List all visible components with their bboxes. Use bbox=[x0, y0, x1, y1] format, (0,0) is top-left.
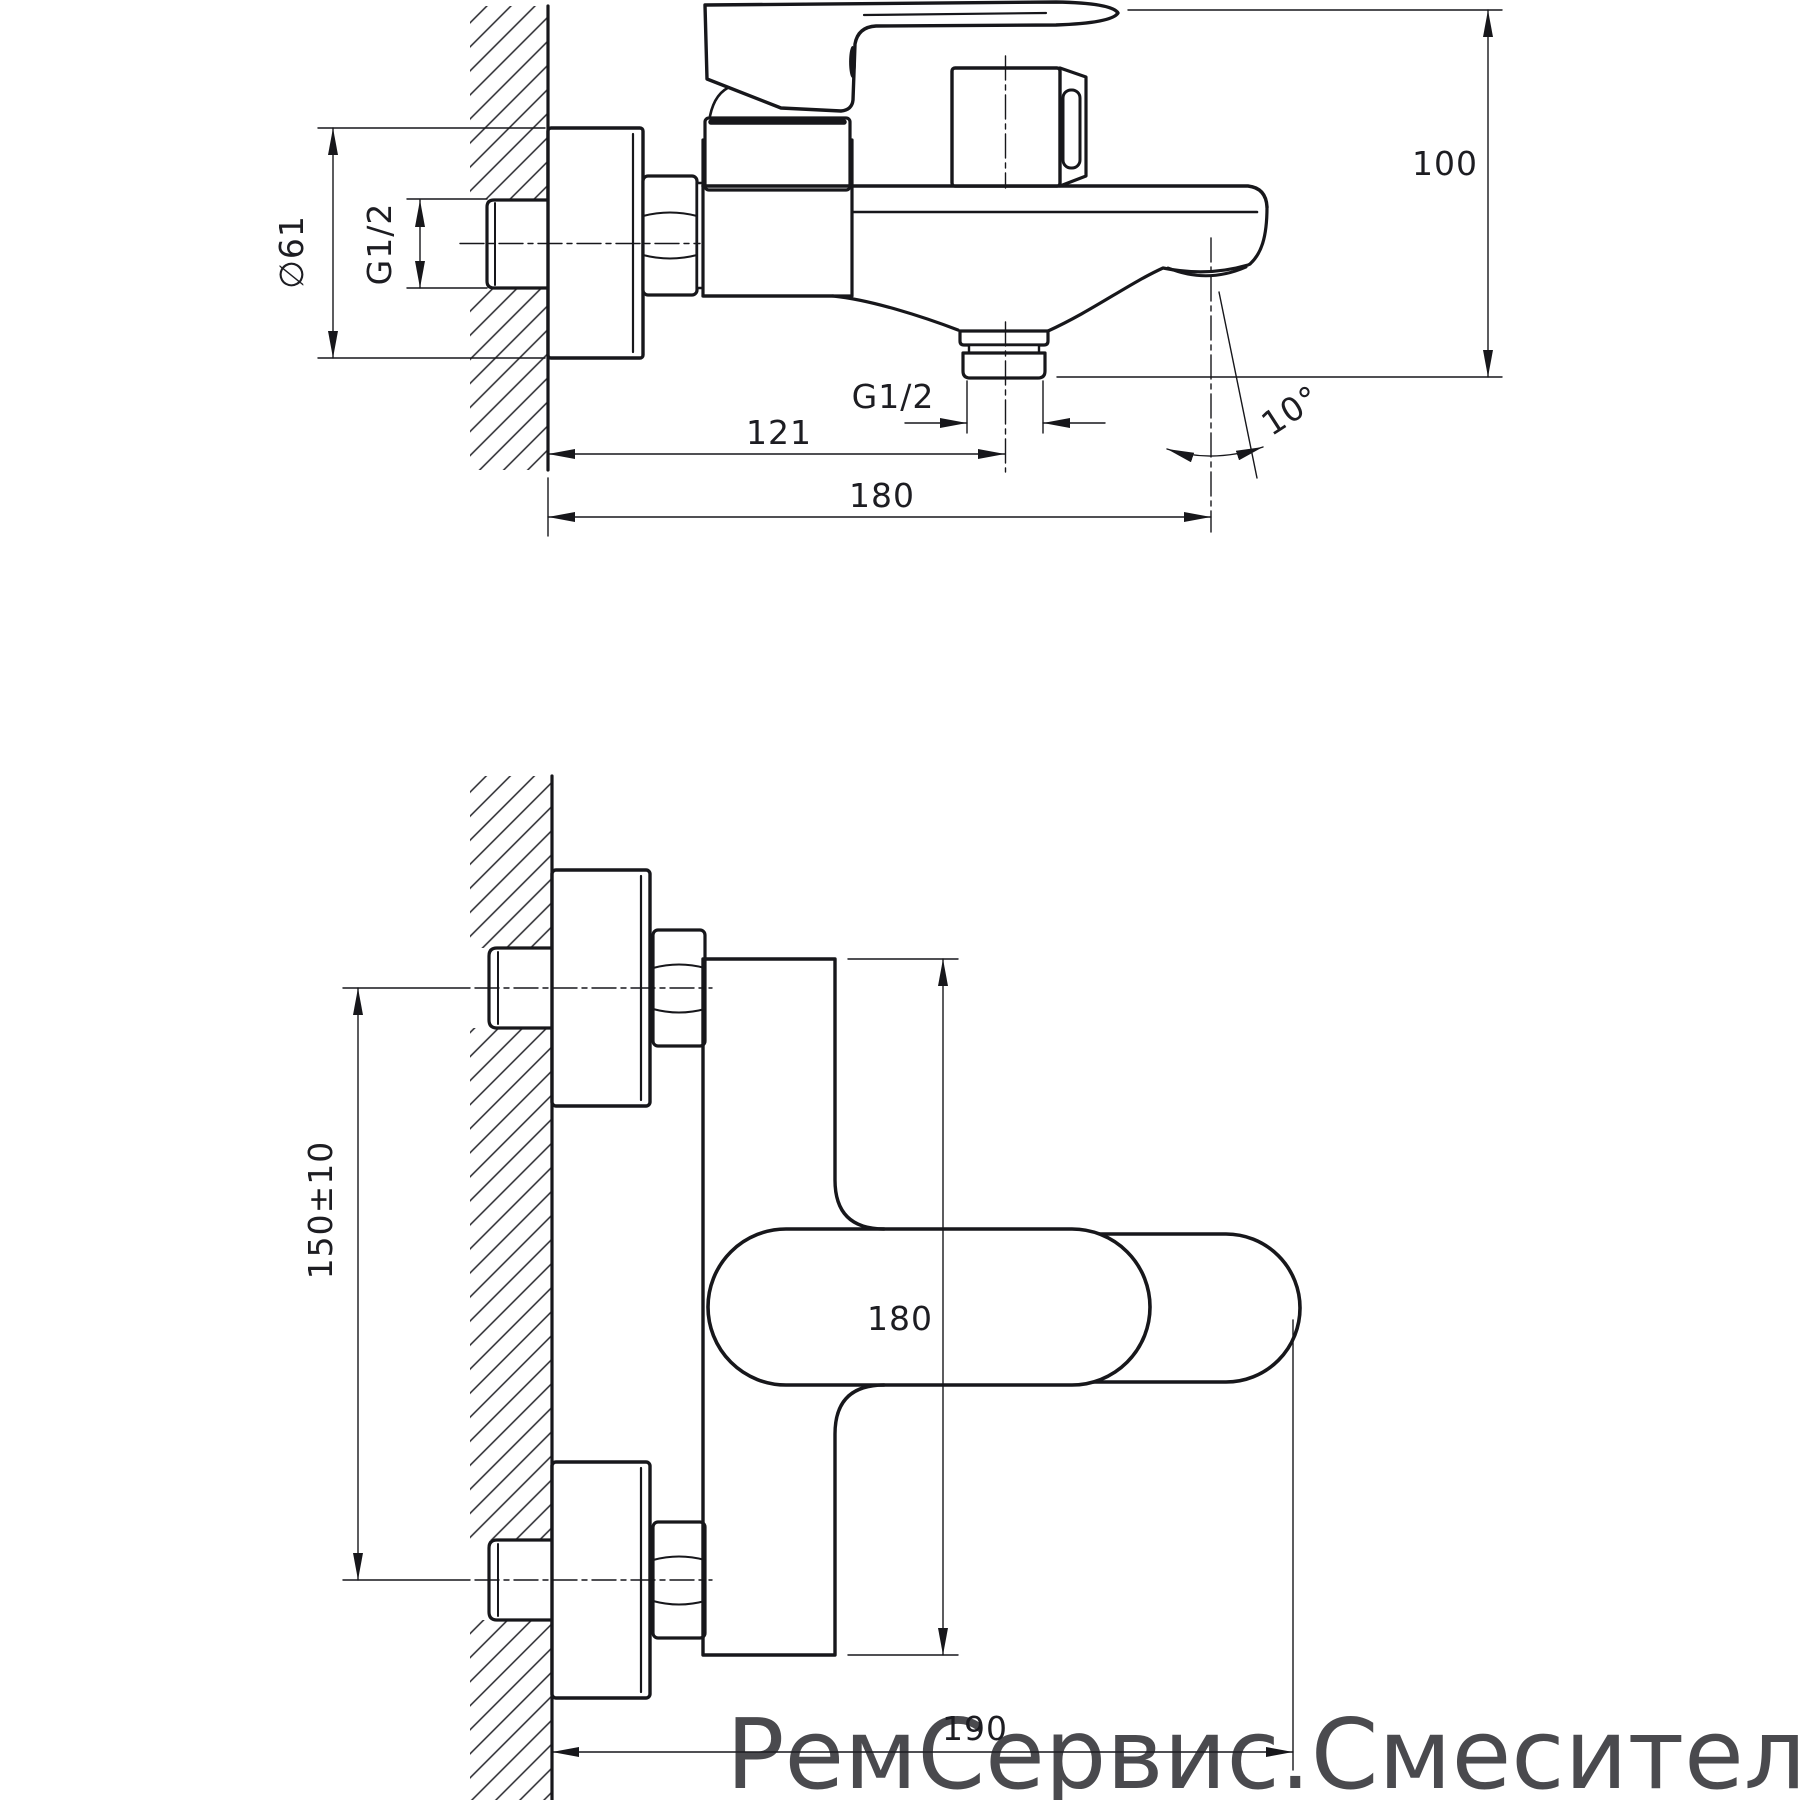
dim-connection-centers bbox=[343, 988, 470, 1580]
dim-spout-angle bbox=[1167, 292, 1263, 478]
side-spout-tip-face bbox=[1250, 207, 1267, 264]
side-spout-underside-left bbox=[833, 296, 958, 330]
side-cartridge-cap bbox=[705, 118, 850, 190]
watermark-text: РемСервис.Смесители bbox=[726, 1698, 1800, 1800]
label-outlet-thread: G1/2 bbox=[852, 377, 935, 416]
label-wall-to-spout-end: 180 bbox=[849, 476, 915, 515]
side-lever-edge-highlight bbox=[849, 46, 856, 78]
side-shower-outlet-flange bbox=[960, 331, 1048, 345]
label-spout-angle: 10° bbox=[1254, 377, 1327, 443]
side-view bbox=[318, 2, 1502, 536]
side-hex-nut bbox=[643, 176, 697, 295]
faucet-technical-drawing: ∅61 G1/2 G1/2 121 180 100 10° 150±10 180… bbox=[0, 0, 1800, 1800]
side-shower-outlet-nozzle bbox=[963, 353, 1045, 378]
side-cap-arc bbox=[710, 86, 732, 116]
label-wall-to-outlet: 121 bbox=[746, 413, 812, 452]
drawing-page: ∅61 G1/2 G1/2 121 180 100 10° 150±10 180… bbox=[0, 0, 1800, 1800]
front-view bbox=[343, 776, 1300, 1800]
side-diverter-slot bbox=[1063, 90, 1080, 168]
label-body-height: 180 bbox=[867, 1299, 933, 1338]
label-wall-thread: G1/2 bbox=[360, 203, 399, 286]
dimension-labels: ∅61 G1/2 G1/2 121 180 100 10° 150±10 180… bbox=[272, 144, 1478, 1748]
front-wall-hatch bbox=[470, 776, 552, 1800]
label-connection-centers: 150±10 bbox=[301, 1141, 340, 1280]
dim-overall-height bbox=[1057, 10, 1502, 377]
label-overall-height: 100 bbox=[1412, 144, 1478, 183]
label-escutcheon-diameter: ∅61 bbox=[272, 215, 311, 289]
